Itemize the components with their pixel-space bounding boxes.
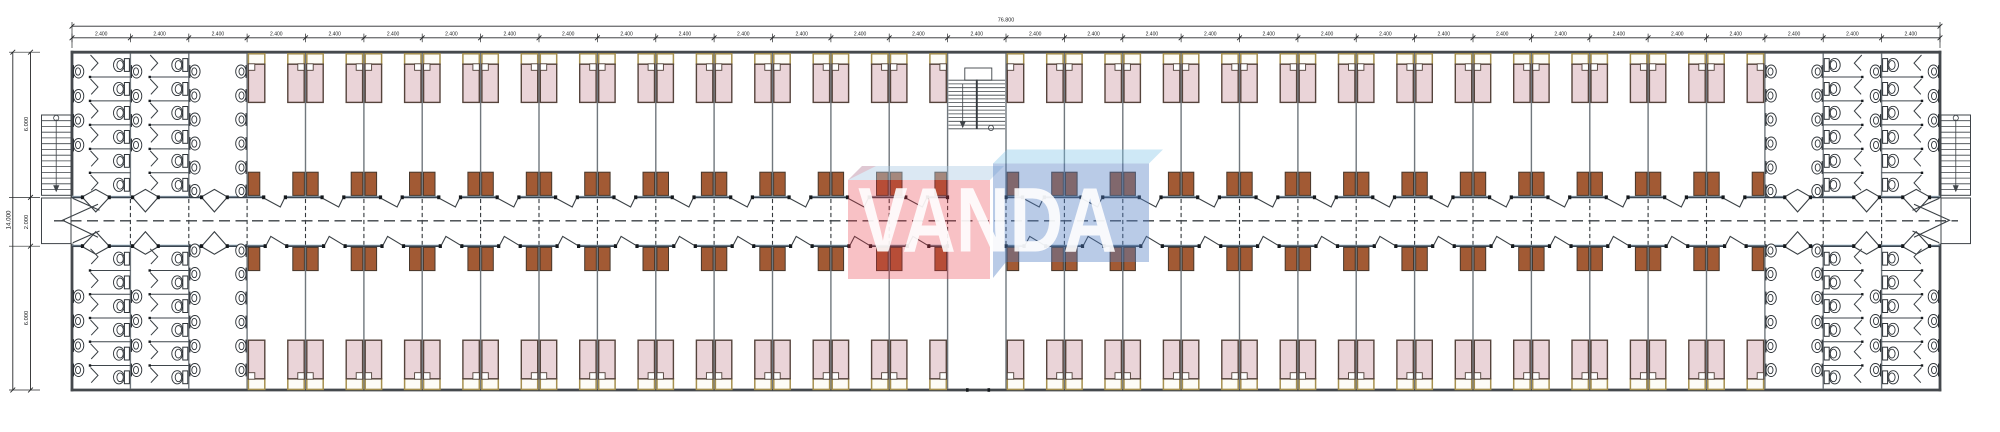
svg-text:2.400: 2.400 — [912, 31, 925, 37]
svg-text:14.000: 14.000 — [6, 210, 13, 229]
svg-text:2.400: 2.400 — [212, 31, 225, 37]
svg-text:6.000: 6.000 — [24, 311, 30, 326]
svg-text:6.000: 6.000 — [24, 117, 30, 132]
svg-text:2.400: 2.400 — [1146, 31, 1159, 37]
svg-text:76.800: 76.800 — [998, 18, 1015, 24]
svg-text:2.400: 2.400 — [562, 31, 575, 37]
svg-text:2.400: 2.400 — [1379, 31, 1392, 37]
svg-text:2.400: 2.400 — [620, 31, 633, 37]
svg-text:2.400: 2.400 — [1204, 31, 1217, 37]
svg-text:2.400: 2.400 — [971, 31, 984, 37]
svg-text:2.400: 2.400 — [1438, 31, 1451, 37]
svg-text:2.400: 2.400 — [1671, 31, 1684, 37]
svg-text:2.400: 2.400 — [1321, 31, 1334, 37]
svg-text:2.400: 2.400 — [854, 31, 867, 37]
svg-text:2.400: 2.400 — [445, 31, 458, 37]
svg-text:2.400: 2.400 — [1029, 31, 1042, 37]
svg-text:2.000: 2.000 — [24, 215, 30, 230]
svg-text:2.400: 2.400 — [1087, 31, 1100, 37]
svg-text:2.400: 2.400 — [270, 31, 283, 37]
svg-text:2.400: 2.400 — [795, 31, 808, 37]
svg-text:2.400: 2.400 — [1905, 31, 1918, 37]
svg-text:2.400: 2.400 — [1262, 31, 1275, 37]
svg-text:2.400: 2.400 — [1496, 31, 1509, 37]
svg-text:VANDA: VANDA — [858, 170, 1117, 272]
svg-text:2.400: 2.400 — [1846, 31, 1859, 37]
svg-text:2.400: 2.400 — [1554, 31, 1567, 37]
svg-text:2.400: 2.400 — [679, 31, 692, 37]
svg-text:2.400: 2.400 — [153, 31, 166, 37]
svg-text:2.400: 2.400 — [1788, 31, 1801, 37]
svg-text:2.400: 2.400 — [1729, 31, 1742, 37]
svg-text:2.400: 2.400 — [95, 31, 108, 37]
svg-text:2.400: 2.400 — [737, 31, 750, 37]
svg-text:2.400: 2.400 — [328, 31, 341, 37]
svg-text:2.400: 2.400 — [1613, 31, 1626, 37]
svg-text:2.400: 2.400 — [504, 31, 517, 37]
svg-text:2.400: 2.400 — [387, 31, 400, 37]
